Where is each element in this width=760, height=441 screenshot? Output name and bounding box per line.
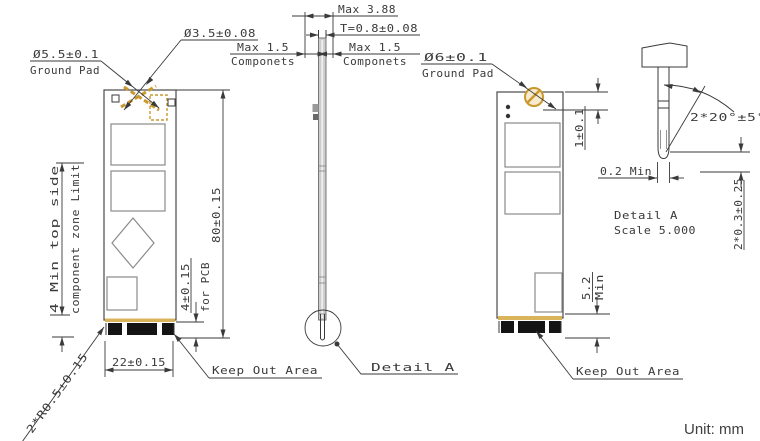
dim-pcb-thickness-label: T=0.8±0.08 [340, 22, 418, 35]
chip-outline [505, 172, 560, 214]
connector-pad [501, 321, 514, 333]
detail-a-leader-label: Detail A [371, 361, 455, 374]
dim-keepout-min-label: Min [593, 274, 606, 300]
keep-out-area-left-label: Keep Out Area [212, 364, 318, 377]
ground-pad-right-label: Ground Pad [422, 67, 494, 80]
dim-max-component-left-label: Max 1.5 [237, 41, 289, 54]
dim-tip-offset-label: 2*0.3±0.25 [732, 178, 745, 250]
dim-board-width-label: 22±0.15 [112, 356, 166, 369]
via-dot [506, 114, 510, 118]
side-component [313, 114, 318, 120]
dim-edge-finger-label: 4±0.15 [179, 263, 192, 311]
zone-limit-line2: component zone Limit [69, 164, 82, 314]
small-component [107, 277, 137, 310]
via-dot [506, 105, 510, 109]
dim-diameter-5-5-label: Ø5.5±0.1 [33, 48, 99, 61]
keep-out-area-right-label: Keep Out Area [576, 365, 680, 378]
small-component [535, 273, 562, 312]
dim-diameter-6-label: Ø6±0.1 [424, 51, 488, 64]
edge-connector-gold-strip [498, 316, 562, 320]
drawing-canvas: Ø3.5±0.08 Ø5.5±0.1 Ground Pad Max 3.88 T… [0, 0, 760, 441]
dim-pin-angle-label: 2*20°±5° [690, 111, 760, 124]
connector-pad [162, 323, 174, 335]
connector-pad [127, 323, 157, 335]
dim-max-component-right-label: Max 1.5 [349, 41, 401, 54]
connector-pad [518, 321, 545, 333]
components-left-label: Componets [231, 55, 295, 68]
chip-outline [111, 171, 165, 211]
dim-tip-min-label: 0.2 Min [600, 165, 652, 178]
dim-keepout-height-label: 5.2 [580, 276, 593, 300]
bottom-view [497, 88, 563, 333]
dim-diameter-3-5-label: Ø3.5±0.08 [184, 27, 256, 40]
detail-a-title: Detail A [614, 209, 678, 222]
ground-pad-left-label: Ground Pad [30, 64, 100, 77]
dim-max-thickness-label: Max 3.88 [338, 3, 396, 16]
components-right-label: Componets [343, 55, 407, 68]
side-component [313, 104, 319, 112]
dim-pad-offset-label: 1±0.1 [573, 108, 586, 148]
top-view [104, 86, 176, 335]
unit-label: Unit: mm [684, 421, 744, 438]
chip-outline [111, 124, 165, 165]
mechanical-drawing: Ø3.5±0.08 Ø5.5±0.1 Ground Pad Max 3.88 T… [0, 0, 760, 441]
chip-outline [505, 123, 560, 167]
dim-board-length-label: 80±0.15 [210, 187, 223, 243]
for-pcb-label: for PCB [199, 262, 212, 312]
detail-a-scale: Scale 5.000 [614, 224, 696, 237]
edge-connector-gold-strip [105, 319, 175, 323]
connector-pad [108, 323, 122, 335]
zone-limit-line1: 4 Min top side [48, 165, 61, 313]
connector-pad [549, 321, 561, 333]
